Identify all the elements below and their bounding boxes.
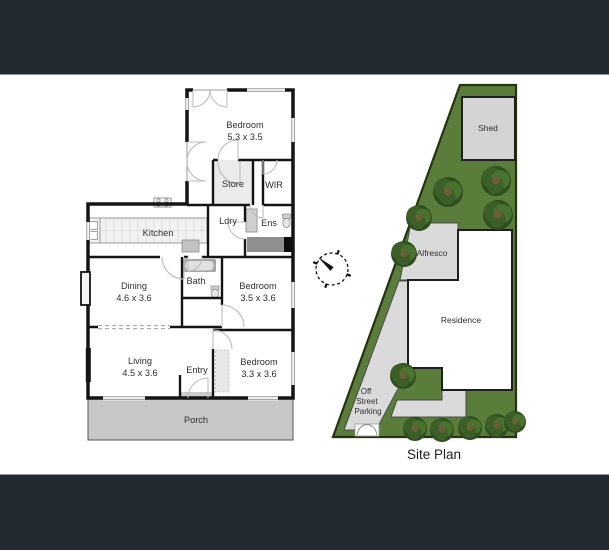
label-living-dims: 4.5 x 3.6 bbox=[122, 368, 157, 378]
screenshot-root: Bedroom 5.3 x 3.5 Store WIR Ldry Ens Kit… bbox=[0, 0, 609, 550]
living-window-block bbox=[86, 348, 91, 382]
label-parking-1: Off bbox=[361, 387, 372, 396]
label-ldry: Ldry bbox=[219, 216, 237, 226]
kitchen-sink bbox=[90, 222, 98, 230]
label-living: Living bbox=[128, 356, 152, 366]
label-alfresco: Alfresco bbox=[417, 248, 448, 258]
site-plan-title: Site Plan bbox=[407, 447, 461, 462]
label-wir: WIR bbox=[265, 180, 283, 190]
label-parking-2: Street bbox=[356, 397, 378, 406]
laundry-appliance bbox=[246, 209, 257, 232]
site-plan: Shed Alfresco Residence Off Street Parki… bbox=[333, 85, 526, 462]
north-compass-icon bbox=[313, 250, 351, 288]
gate-icon bbox=[355, 424, 379, 436]
label-porch: Porch bbox=[184, 415, 208, 425]
robe bbox=[216, 350, 230, 392]
label-kitchen: Kitchen bbox=[143, 228, 174, 238]
label-bedroom-bottom: Bedroom bbox=[240, 357, 278, 367]
label-residence: Residence bbox=[441, 315, 481, 325]
label-bedroom-mid: Bedroom bbox=[239, 281, 277, 291]
bottom-dark-bar bbox=[0, 474, 609, 550]
label-dining-dims: 4.6 x 3.6 bbox=[116, 293, 151, 303]
label-bedroom-top-dims: 5.3 x 3.5 bbox=[227, 132, 262, 142]
label-store: Store bbox=[222, 179, 244, 189]
label-bath: Bath bbox=[187, 276, 206, 286]
label-ens: Ens bbox=[261, 218, 277, 228]
bath-toilet bbox=[211, 286, 219, 298]
ensuite-vanity bbox=[247, 237, 284, 252]
label-entry: Entry bbox=[186, 365, 208, 375]
label-shed: Shed bbox=[478, 123, 498, 133]
fireplace bbox=[81, 272, 90, 305]
floor-plan: Bedroom 5.3 x 3.5 Store WIR Ldry Ens Kit… bbox=[81, 88, 295, 440]
top-dark-bar bbox=[0, 0, 609, 75]
label-bedroom-top: Bedroom bbox=[226, 120, 264, 130]
label-dining: Dining bbox=[121, 281, 147, 291]
ensuite-toilet bbox=[283, 214, 291, 228]
label-parking-3: Parking bbox=[354, 407, 381, 416]
dishwasher bbox=[182, 240, 199, 252]
label-bedroom-bottom-dims: 3.3 x 3.6 bbox=[241, 369, 276, 379]
floorplan-and-siteplan-image: Bedroom 5.3 x 3.5 Store WIR Ldry Ens Kit… bbox=[0, 74, 609, 474]
label-bedroom-mid-dims: 3.5 x 3.6 bbox=[240, 293, 275, 303]
cased-opening bbox=[98, 326, 170, 329]
